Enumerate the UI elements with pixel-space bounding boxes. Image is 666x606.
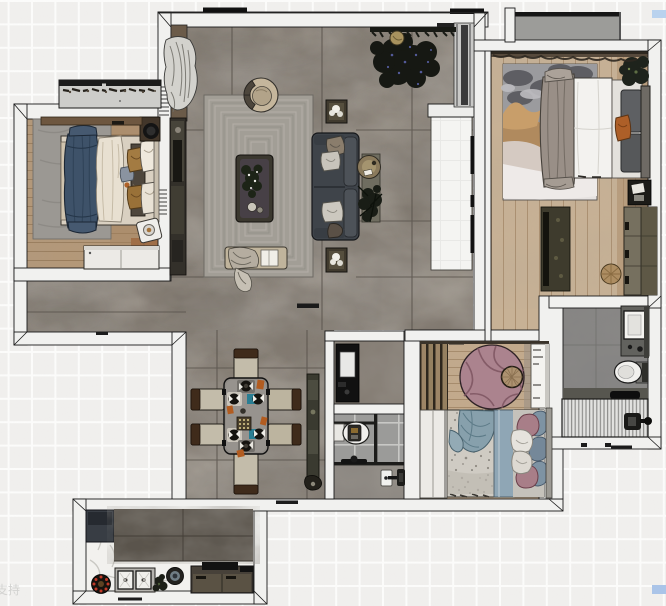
svg-text:支持: 支持 (0, 582, 20, 597)
